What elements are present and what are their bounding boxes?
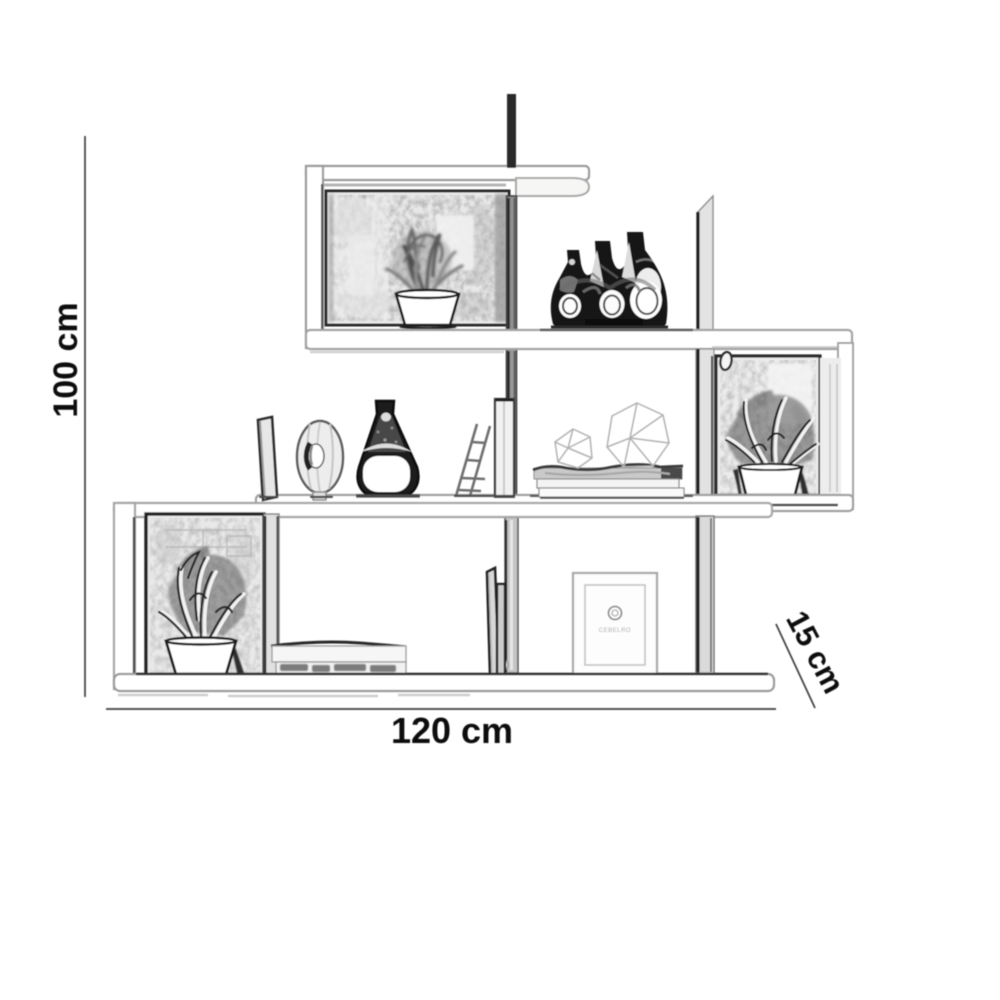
svg-text:CEBELRO: CEBELRO bbox=[599, 628, 631, 634]
svg-text:120 cm: 120 cm bbox=[391, 710, 513, 751]
svg-text:15 cm: 15 cm bbox=[779, 605, 851, 699]
svg-text:100 cm: 100 cm bbox=[47, 302, 85, 417]
